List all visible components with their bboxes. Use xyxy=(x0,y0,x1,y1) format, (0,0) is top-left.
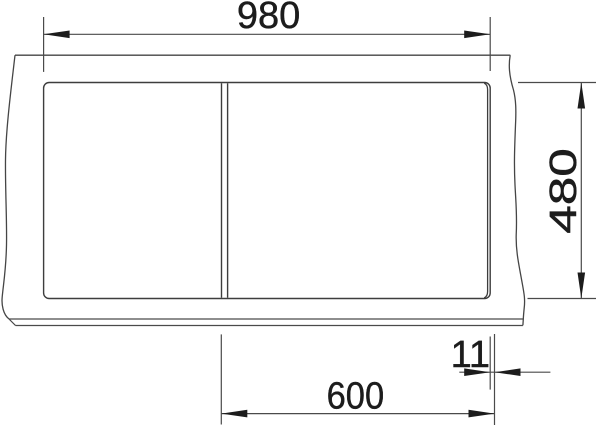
svg-text:980: 980 xyxy=(237,0,300,37)
svg-text:600: 600 xyxy=(327,375,385,417)
svg-text:11: 11 xyxy=(451,334,490,376)
svg-text:480: 480 xyxy=(543,148,585,234)
